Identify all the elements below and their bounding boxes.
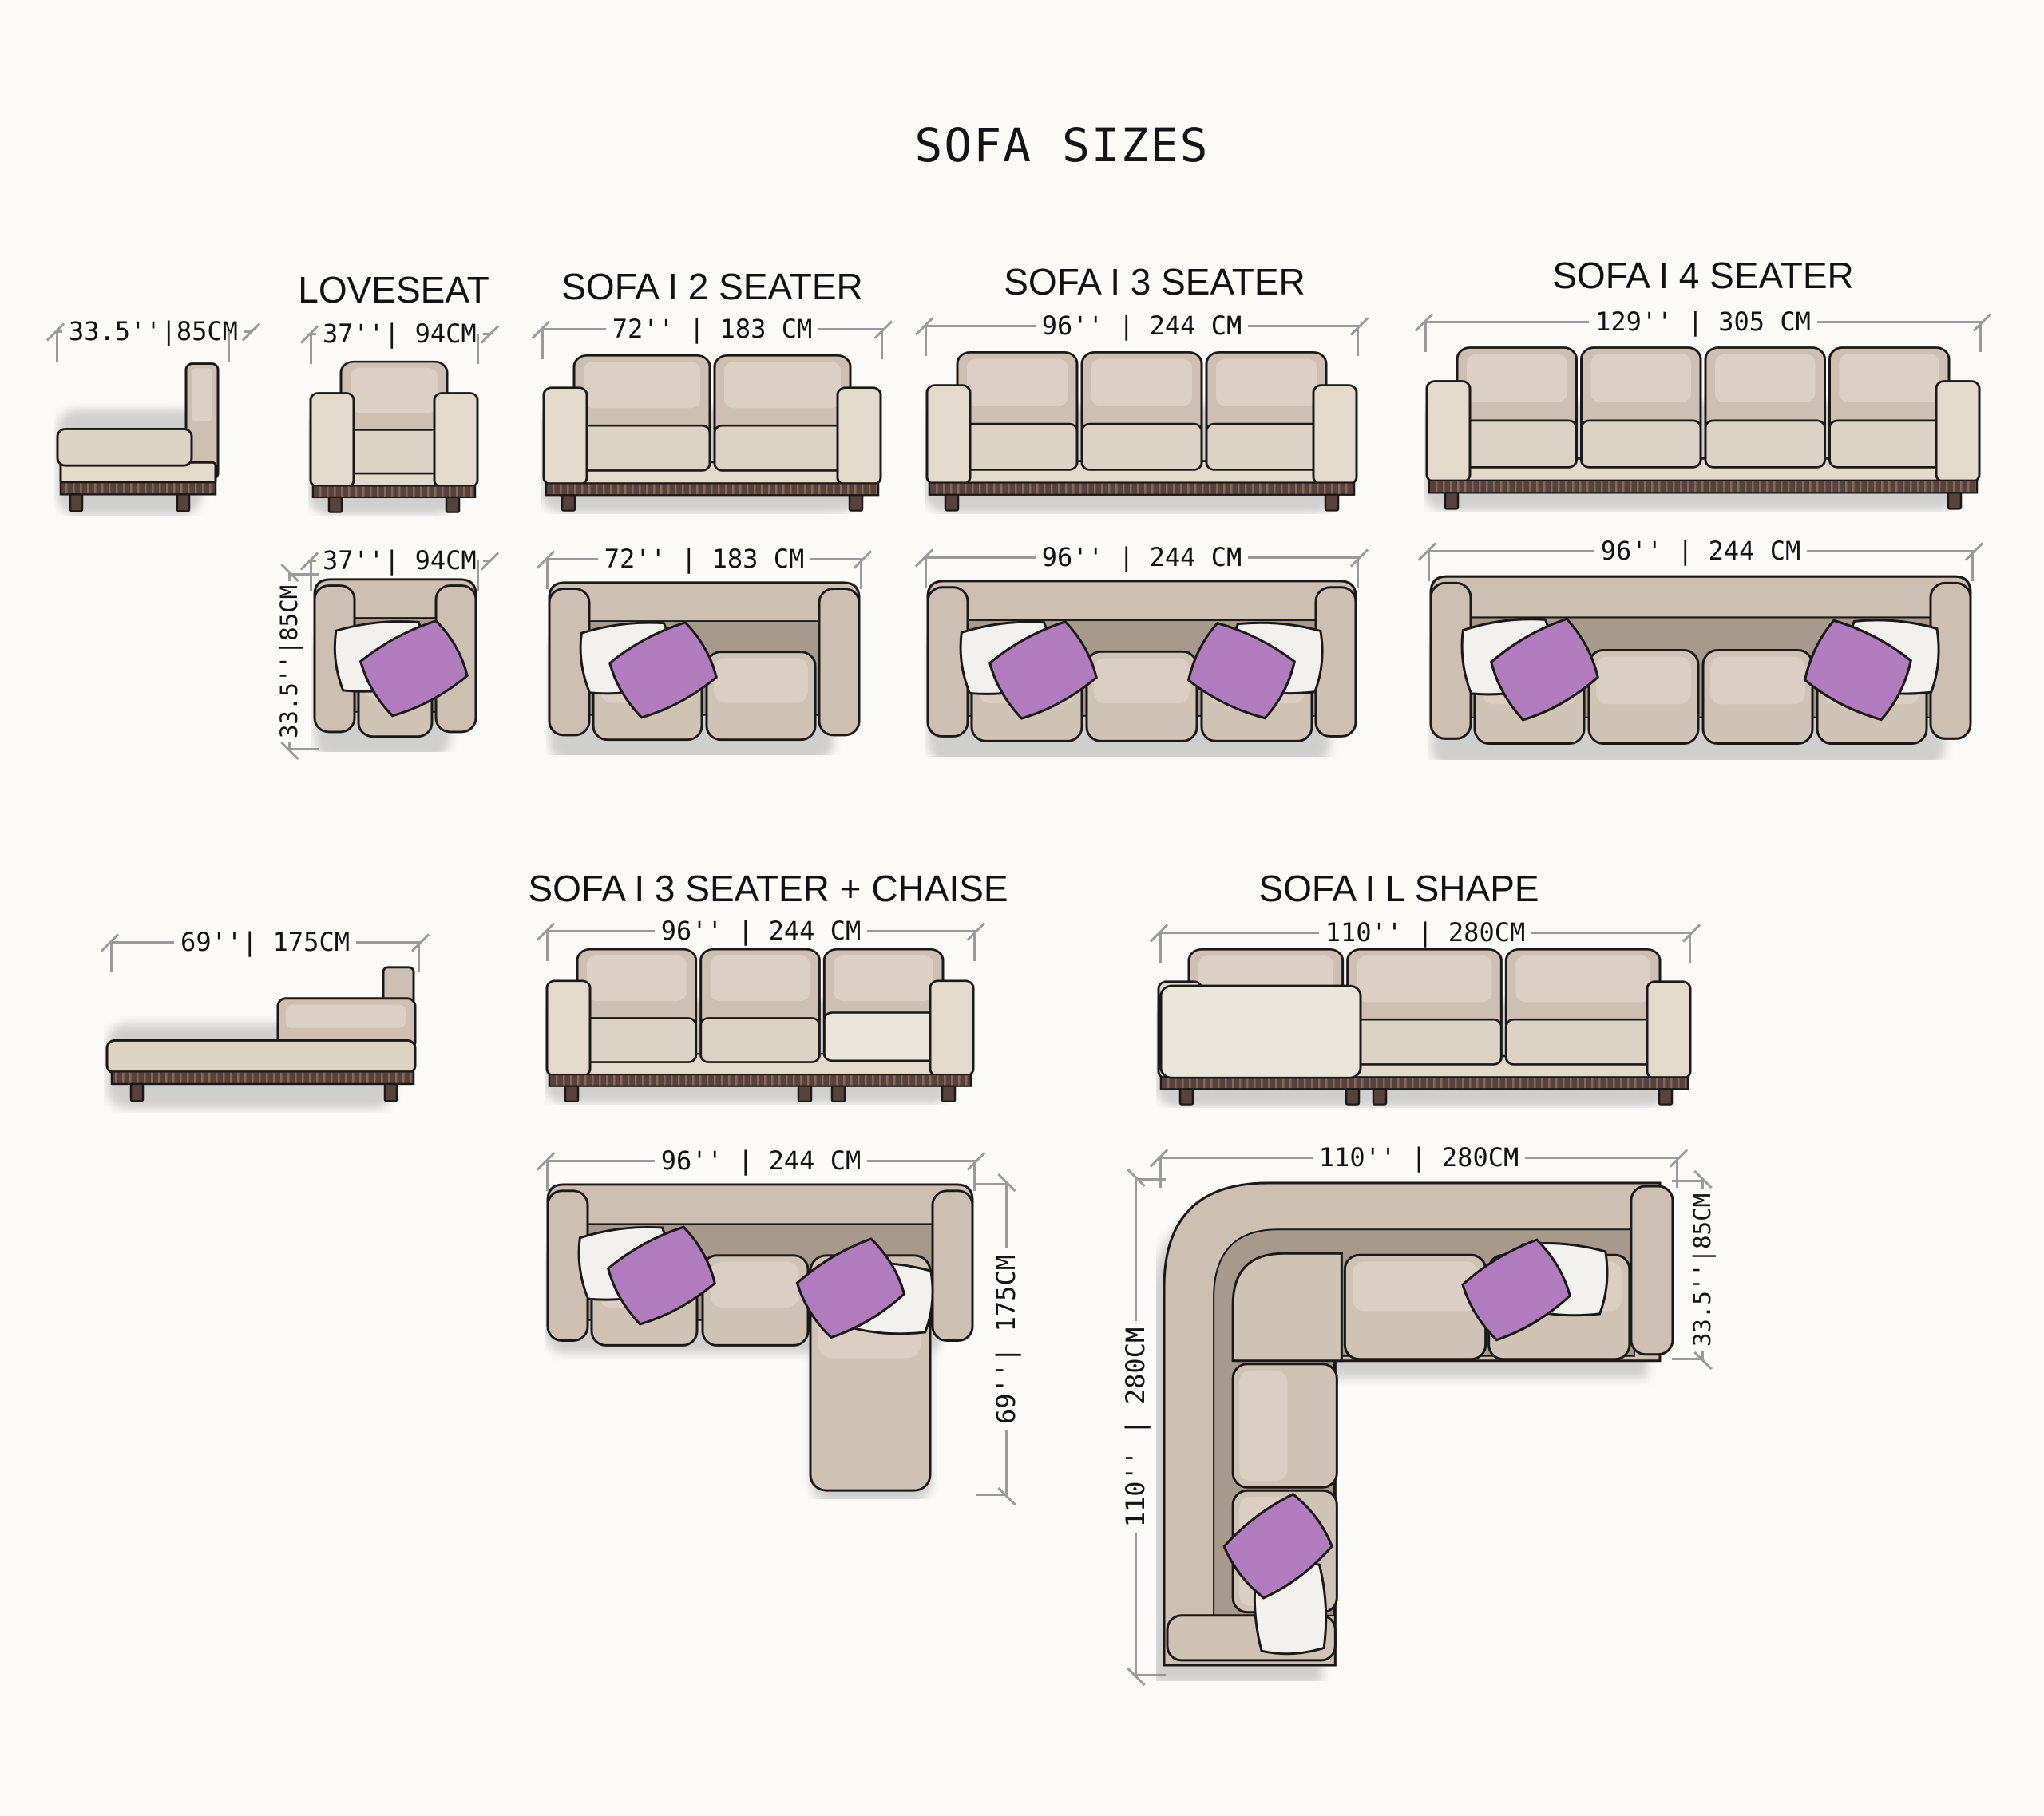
dim-text: 72'' | 183 CM — [612, 313, 812, 345]
dim-line — [546, 930, 655, 932]
dim-text: 37''| 94CM — [323, 544, 477, 576]
dim-line — [1248, 325, 1359, 327]
dim-line — [1005, 1183, 1008, 1248]
dim-loveseat-depth: 33.5''|85CM — [273, 573, 305, 750]
dim-text: 96'' | 244 CM — [1042, 310, 1242, 342]
dim-line — [310, 560, 316, 562]
label-3-seater: SOFA I 3 SEATER — [1004, 260, 1305, 303]
dim-line — [810, 558, 862, 560]
dim-4seater-top-width: 96'' | 244 CM — [1428, 535, 1974, 567]
dim-line — [483, 560, 489, 562]
dim-line — [244, 330, 251, 333]
dim-line — [56, 330, 62, 333]
label-4-seater: SOFA I 4 SEATER — [1552, 254, 1854, 297]
dim-line — [310, 333, 316, 335]
dim-text: 129'' | 305 CM — [1595, 306, 1811, 338]
dim-2seater-top-width: 72'' | 183 CM — [546, 543, 862, 575]
loveseat-front-illustration — [308, 358, 480, 516]
dim-text: 110'' | 280CM — [1119, 1327, 1151, 1527]
dim-line — [483, 333, 489, 335]
label-3-seater-chaise: SOFA I 3 SEATER + CHAISE — [528, 867, 1008, 910]
dim-text: 33.5''|85CM — [273, 585, 305, 738]
dim-line — [110, 941, 174, 944]
dim-text: 110'' | 280CM — [1325, 916, 1525, 948]
dim-text: 33.5''|85CM — [1686, 1193, 1718, 1347]
dim-3seater-top-width: 96'' | 244 CM — [925, 541, 1359, 573]
dim-text: 96'' | 244 CM — [661, 1145, 861, 1177]
dim-chaise-length: 69''| 175CM — [110, 926, 420, 958]
dim-line — [1159, 1157, 1313, 1159]
sofa-sizes-infographic: SOFA SIZES LOVESEAT SOFA I 2 SEATER SOFA… — [0, 0, 2044, 1816]
dim-loveseat-width: 37''| 94CM — [310, 318, 479, 350]
dim-3seater-chaise-top-width: 96'' | 244 CM — [546, 1145, 976, 1177]
dim-3seater-chaise-width: 96'' | 244 CM — [546, 915, 976, 947]
dim-line — [541, 328, 606, 330]
dim-4seater-width: 129'' | 305 CM — [1424, 306, 1982, 338]
sofa-3-seater-chaise-front-illustration — [545, 945, 976, 1105]
dim-line — [356, 941, 420, 944]
dim-line — [1424, 321, 1589, 323]
dim-lshape-depth: 33.5''|85CM — [1686, 1180, 1718, 1360]
dim-line — [288, 573, 291, 581]
dim-2seater-width: 72'' | 183 CM — [541, 313, 883, 345]
dim-line — [925, 325, 1036, 327]
sofa-3-seater-chaise-top-illustration — [545, 1180, 976, 1499]
dim-lshape-left-height: 110'' | 280CM — [1119, 1178, 1151, 1676]
dim-3seater-chaise-depth: 69''| 175CM — [990, 1183, 1022, 1496]
dim-line — [867, 1160, 976, 1162]
dim-text: 110'' | 280CM — [1319, 1141, 1519, 1173]
page-title: SOFA SIZES — [80, 118, 2044, 172]
sofa-l-shape-front-illustration — [1156, 945, 1693, 1108]
dim-lshape-top-width: 110'' | 280CM — [1159, 1141, 1678, 1173]
dim-line — [1248, 556, 1359, 559]
sofa-4-seater-front-illustration — [1424, 343, 1982, 512]
sofa-2-seater-top-illustration — [546, 578, 862, 755]
sofa-side-view-illustration — [54, 356, 230, 516]
dim-line — [1701, 1180, 1704, 1189]
dim-line — [288, 742, 291, 750]
dim-line — [818, 328, 883, 330]
dim-line — [1428, 550, 1594, 552]
dim-line — [546, 558, 598, 560]
chaise-side-view-illustration — [104, 961, 423, 1113]
dim-3seater-width: 96'' | 244 CM — [925, 310, 1359, 342]
sofa-2-seater-front-illustration — [541, 351, 883, 514]
label-l-shape: SOFA I L SHAPE — [1258, 867, 1539, 910]
sofa-4-seater-top-illustration — [1428, 572, 1974, 760]
label-loveseat: LOVESEAT — [298, 268, 489, 311]
dim-line — [1817, 321, 1982, 323]
dim-line — [867, 930, 976, 932]
label-2-seater: SOFA I 2 SEATER — [561, 265, 863, 308]
sofa-3-seater-front-illustration — [925, 348, 1359, 514]
dim-side-depth: 33.5''|85CM — [56, 315, 230, 347]
dim-text: 96'' | 244 CM — [1042, 541, 1242, 573]
dim-line — [1135, 1533, 1137, 1676]
dim-line — [1525, 1157, 1678, 1159]
dim-line — [1807, 550, 1974, 552]
dim-line — [925, 556, 1036, 559]
sofa-l-shape-top-illustration — [1156, 1177, 1680, 1681]
dim-text: 33.5''|85CM — [69, 315, 238, 347]
dim-text: 69''| 175CM — [990, 1255, 1022, 1424]
dim-lshape-width: 110'' | 280CM — [1159, 916, 1691, 948]
dim-line — [1531, 932, 1691, 934]
dim-line — [1005, 1430, 1008, 1496]
dim-text: 37''| 94CM — [323, 318, 477, 350]
dim-text: 96'' | 244 CM — [661, 915, 861, 947]
dim-text: 69''| 175CM — [180, 926, 350, 958]
sofa-3-seater-top-illustration — [925, 576, 1359, 757]
dim-text: 72'' | 183 CM — [604, 543, 804, 575]
dim-line — [1135, 1178, 1137, 1321]
dim-line — [1159, 932, 1319, 934]
dim-text: 96'' | 244 CM — [1601, 535, 1800, 567]
dim-loveseat-top-width: 37''| 94CM — [310, 544, 479, 576]
dim-line — [546, 1160, 655, 1162]
loveseat-top-illustration — [311, 575, 479, 752]
dim-line — [1701, 1351, 1704, 1360]
